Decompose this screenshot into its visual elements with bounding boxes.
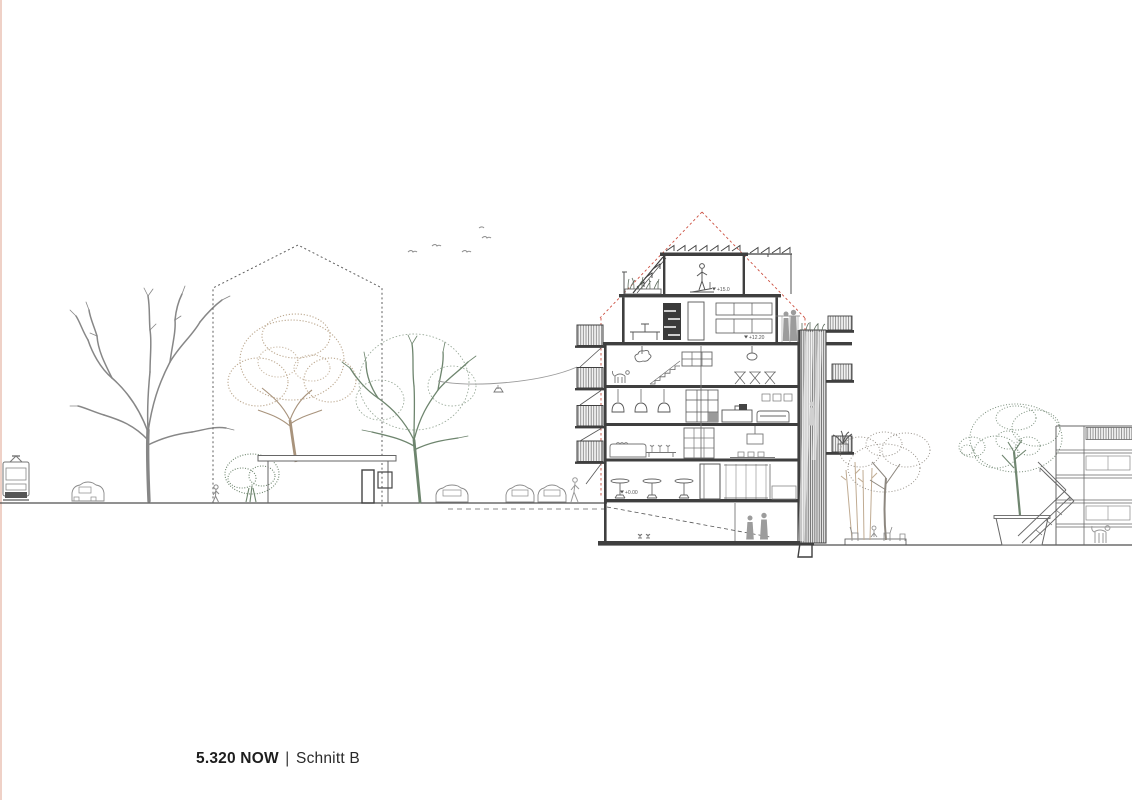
elevation-marker-mid: +12.20 — [749, 335, 765, 341]
page-edge-line — [0, 0, 2, 800]
pedestrian-right — [571, 478, 579, 502]
building-section: +15.0 +12.20 +0.00 — [575, 212, 854, 557]
elevation-marker-ground: +0.00 — [625, 490, 638, 496]
left-balconies — [575, 325, 605, 484]
autumn-tree — [228, 314, 356, 462]
level-1 — [610, 426, 775, 458]
winter-tree — [70, 286, 234, 501]
setback-floor — [630, 302, 800, 342]
treadmill-person — [690, 264, 714, 292]
basement-people — [746, 513, 768, 540]
level-2 — [612, 389, 792, 422]
planter-tree — [970, 404, 1062, 545]
ground-lines — [0, 503, 1132, 545]
basement — [607, 507, 770, 540]
birds — [408, 227, 491, 252]
dog-right — [1092, 526, 1110, 543]
ground-floor — [611, 464, 796, 499]
street-cars — [436, 485, 566, 502]
tram — [3, 456, 29, 500]
section-drawing-canvas: +15.0 +12.20 +0.00 — [0, 0, 1132, 800]
car-left — [72, 482, 104, 501]
drawing-caption: 5.320 NOW | Schnitt B — [196, 750, 360, 768]
interior-partitions — [701, 346, 770, 541]
dog — [612, 371, 629, 383]
green-facade — [798, 316, 854, 543]
elevation-marker-top: +15.0 — [717, 287, 730, 293]
drawing-title: Schnitt B — [296, 750, 360, 767]
architectural-section-sheet: +15.0 +12.20 +0.00 — [0, 0, 1132, 800]
pedestrian-left — [213, 485, 219, 502]
pavilion — [258, 456, 396, 504]
caption-separator: | — [283, 750, 291, 767]
rear-garden — [840, 432, 930, 541]
level-3 — [612, 346, 776, 384]
small-green-canopy — [959, 437, 985, 457]
drawing-number: 5.320 NOW — [196, 750, 279, 767]
